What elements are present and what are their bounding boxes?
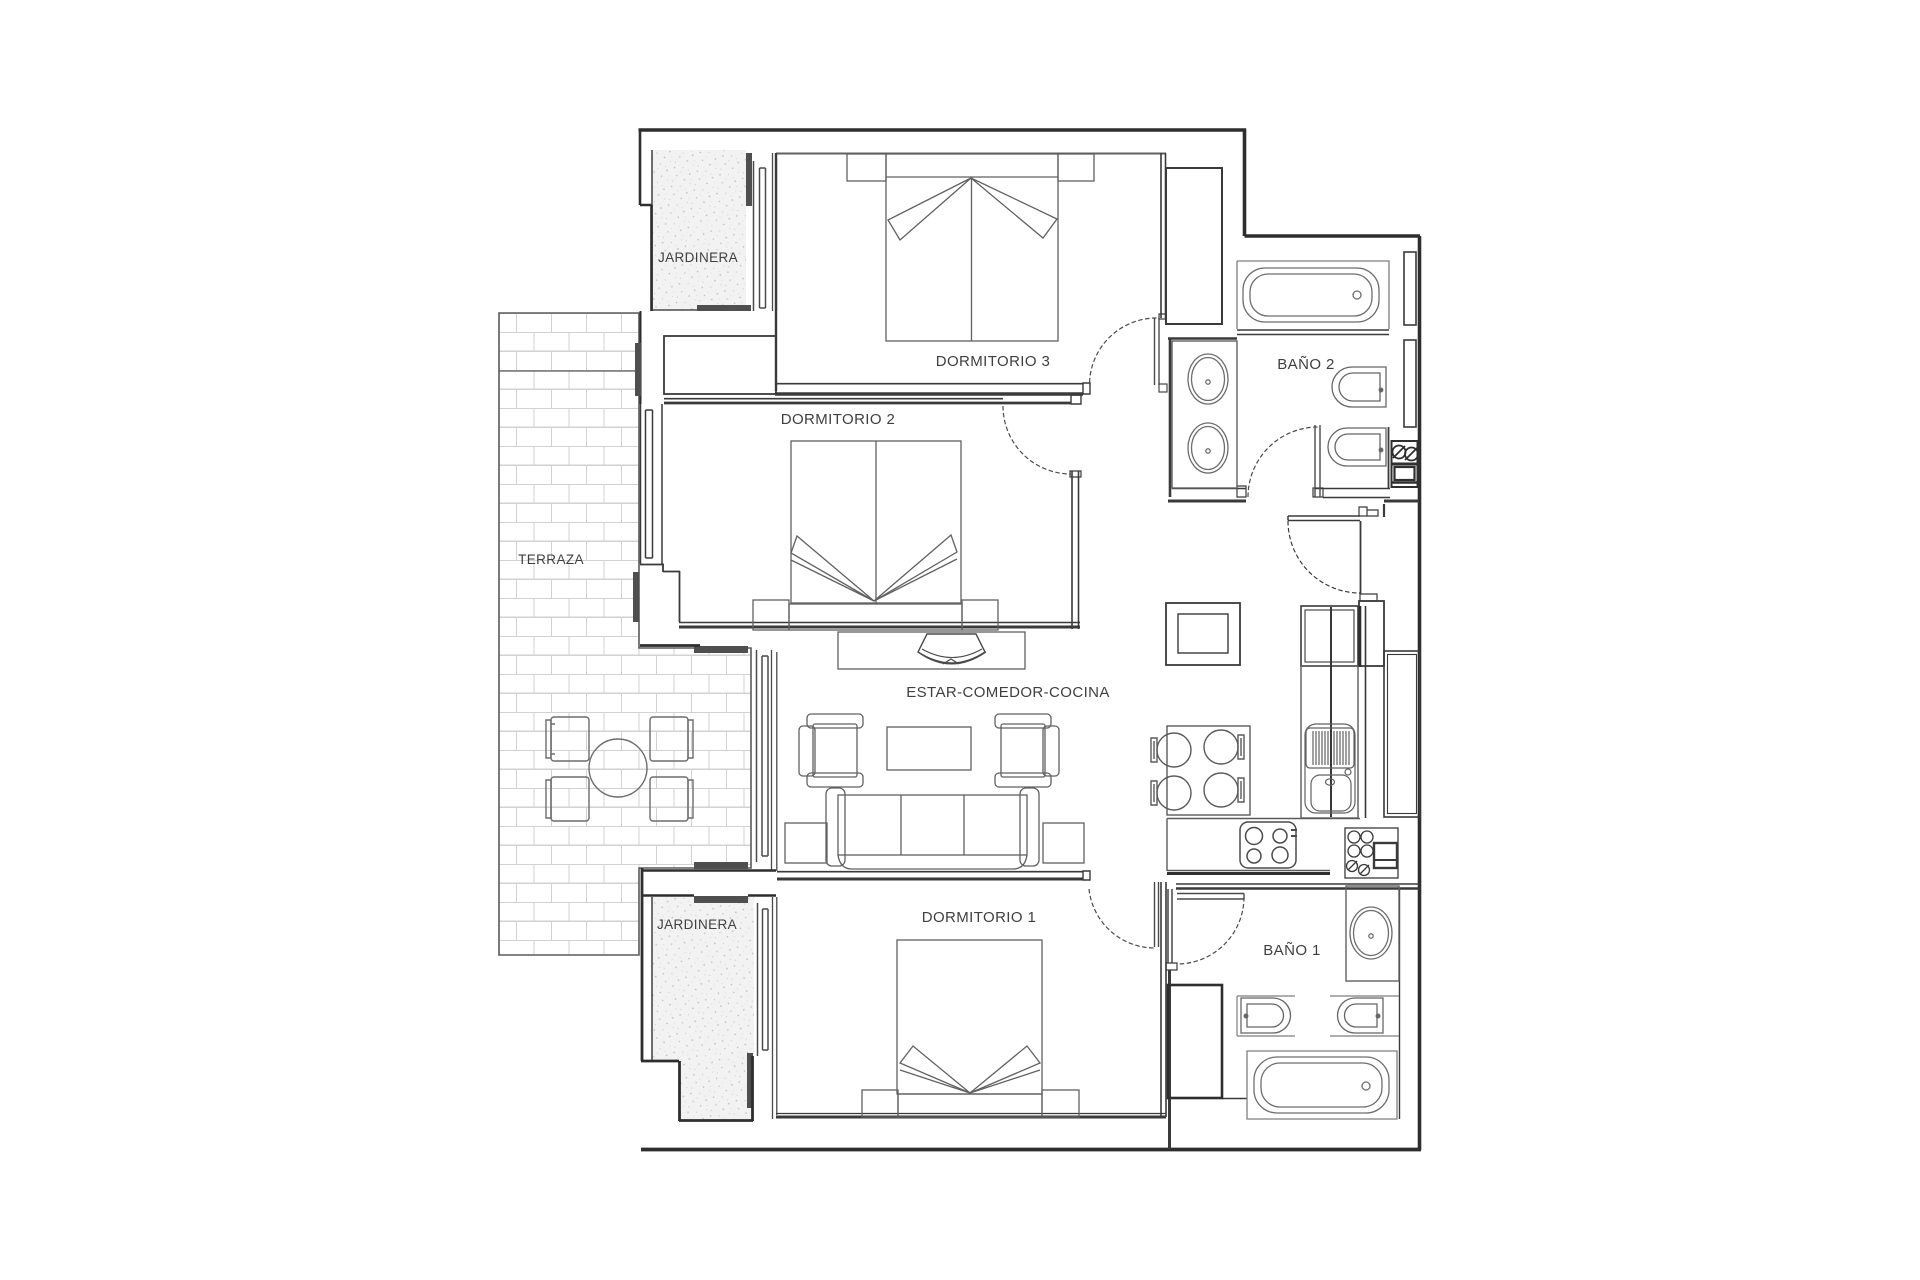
svg-text:BAÑO 1: BAÑO 1 <box>1263 942 1320 959</box>
svg-text:TERRAZA: TERRAZA <box>518 552 584 567</box>
svg-text:BAÑO 2: BAÑO 2 <box>1277 356 1334 373</box>
svg-text:DORMITORIO 2: DORMITORIO 2 <box>781 411 896 428</box>
svg-text:JARDINERA: JARDINERA <box>658 250 738 265</box>
svg-text:ESTAR-COMEDOR-COCINA: ESTAR-COMEDOR-COCINA <box>906 684 1110 701</box>
svg-text:DORMITORIO 3: DORMITORIO 3 <box>936 353 1051 370</box>
svg-text:DORMITORIO 1: DORMITORIO 1 <box>922 909 1037 926</box>
svg-text:JARDINERA: JARDINERA <box>657 917 737 932</box>
